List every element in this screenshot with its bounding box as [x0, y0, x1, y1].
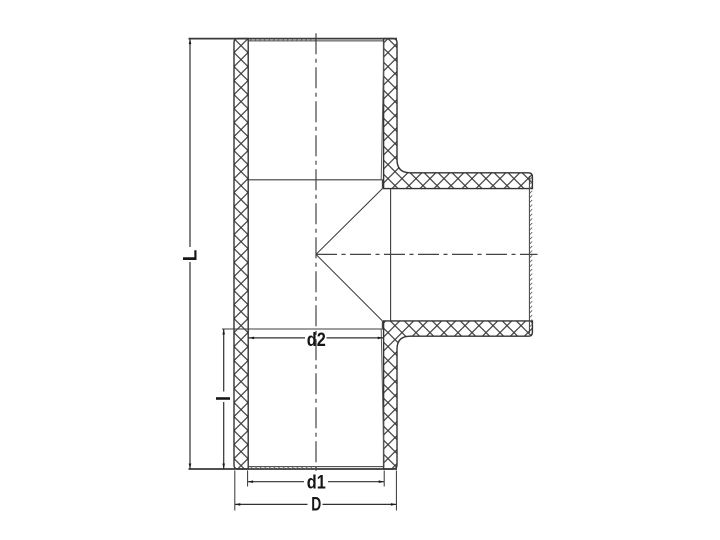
svg-text:L: L [181, 249, 202, 261]
svg-text:l: l [214, 396, 235, 401]
svg-text:d2: d2 [307, 330, 326, 351]
svg-text:d1: d1 [307, 473, 326, 494]
svg-text:D: D [311, 495, 321, 516]
